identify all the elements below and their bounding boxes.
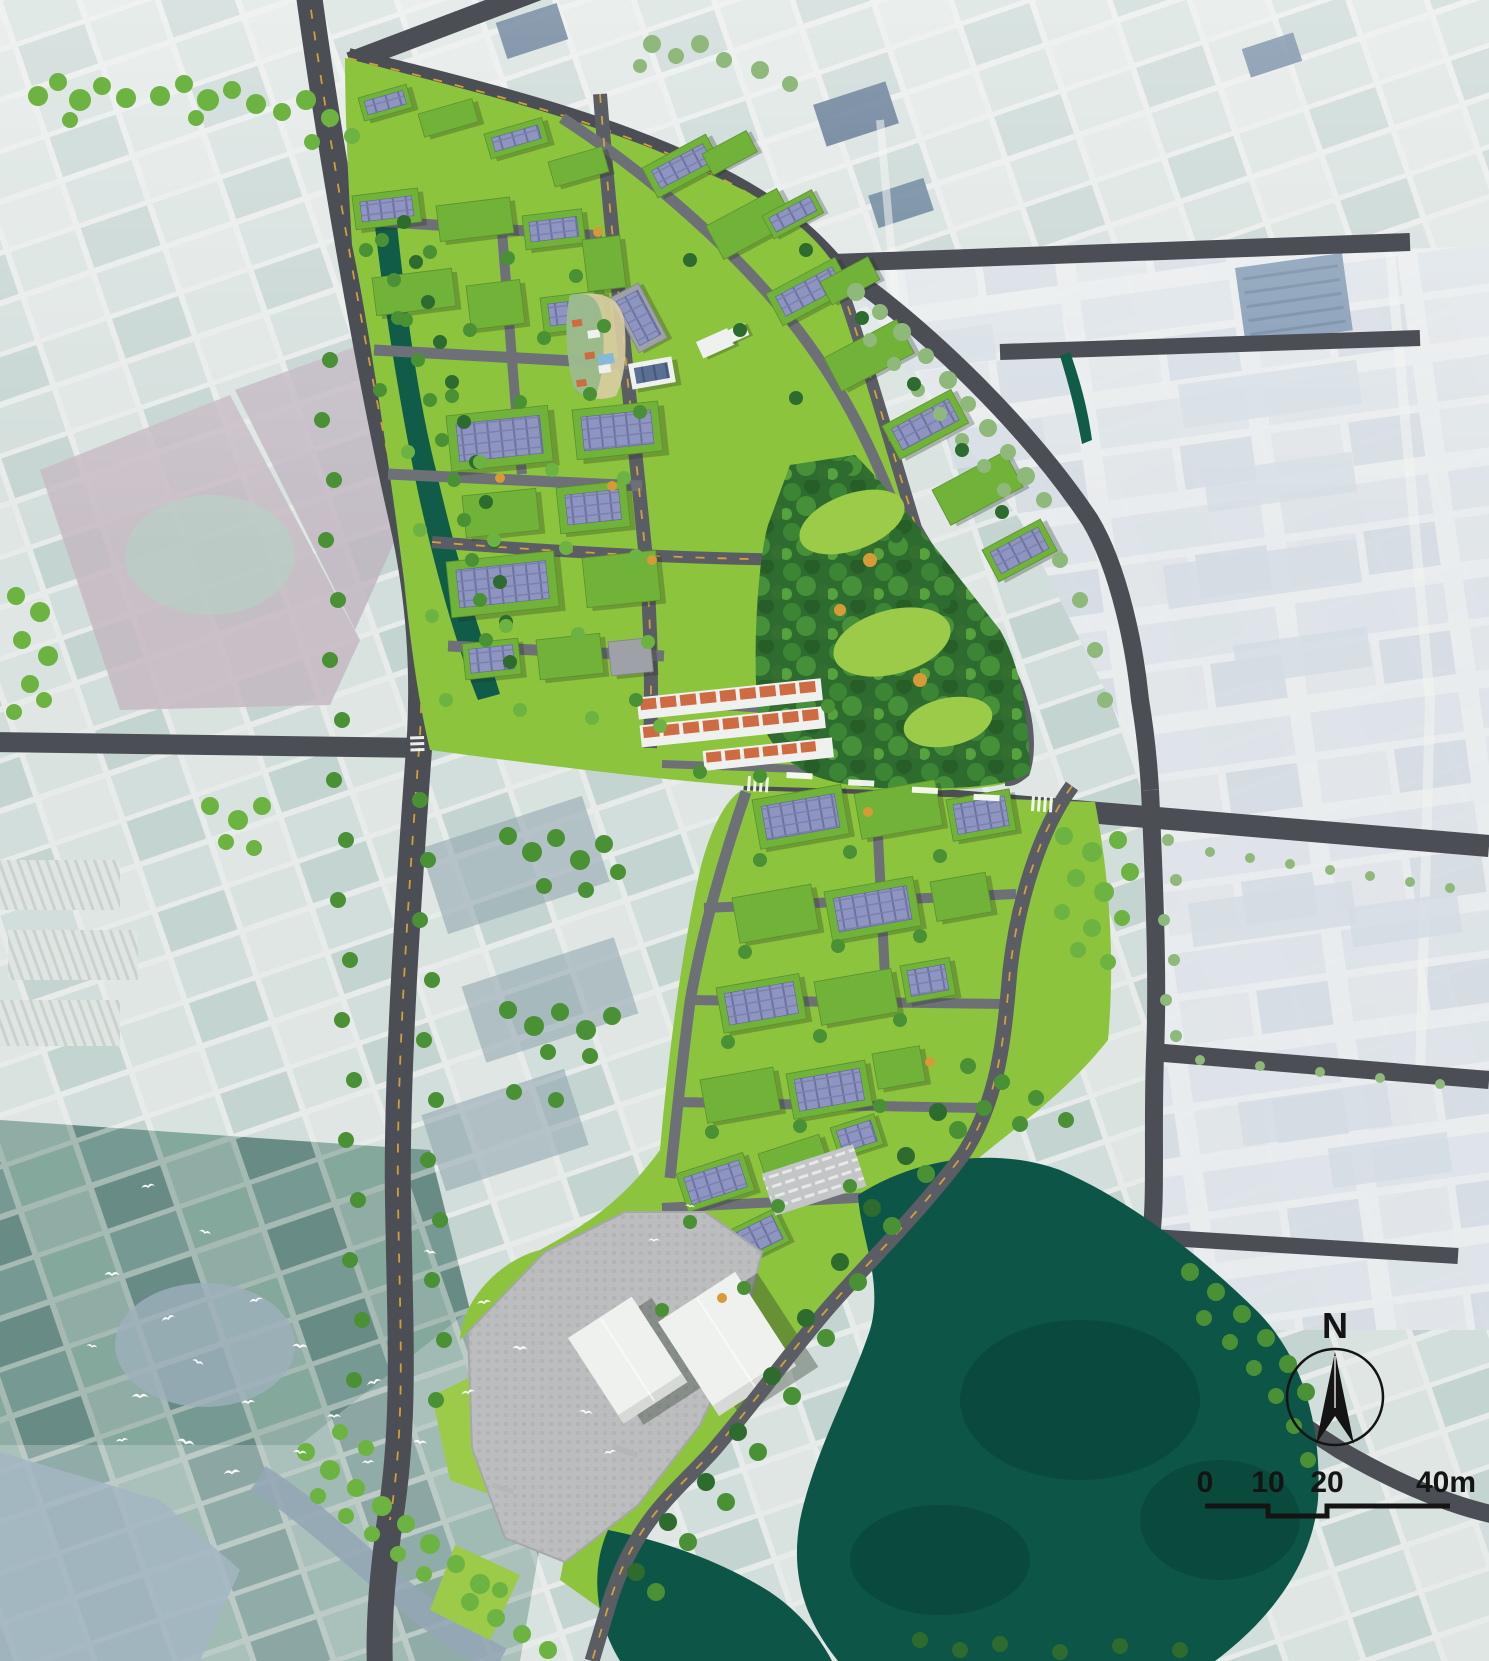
building (536, 633, 609, 684)
scale-tick-label: 10 (1251, 1466, 1284, 1499)
building (446, 550, 566, 623)
building (466, 279, 530, 334)
building (572, 400, 669, 464)
scale-end-label: 40m (1416, 1466, 1476, 1499)
building (462, 488, 545, 542)
pond-lower (115, 1283, 295, 1407)
scale-tick-label: 0 (1197, 1466, 1214, 1499)
building (582, 235, 632, 296)
building (556, 480, 636, 538)
scale-tick-label: 20 (1310, 1466, 1343, 1499)
building (522, 208, 591, 254)
north-label: N (1322, 1305, 1348, 1346)
greenhouse-rows (0, 860, 138, 1046)
building (462, 638, 527, 684)
masterplan-aerial-map: N 0 10 20 40m (0, 0, 1489, 1661)
